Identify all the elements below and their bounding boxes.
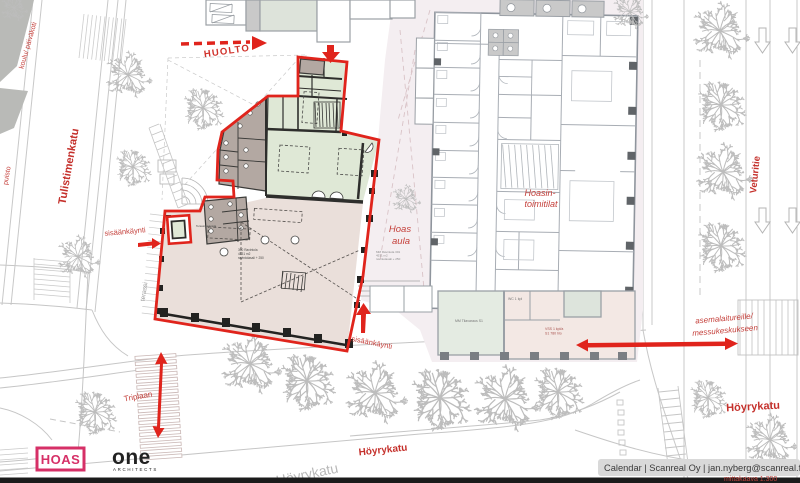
svg-text:one: one (112, 446, 151, 469)
svg-text:Hoas: Hoas (389, 224, 411, 235)
svg-text:toimitilat: toimitilat (524, 199, 558, 209)
svg-text:Terassi ravintola: Terassi ravintola (196, 224, 217, 228)
svg-text:MM Tilavaraus S1: MM Tilavaraus S1 (455, 319, 483, 323)
svg-text:S1 780 hlo: S1 780 hlo (545, 332, 562, 336)
svg-text:HOAS: HOAS (41, 452, 81, 467)
svg-text:ARCHITECTS: ARCHITECTS (113, 467, 158, 472)
svg-text:WC 1 kpl: WC 1 kpl (508, 297, 522, 301)
svg-text:ravintolasali + 250: ravintolasali + 250 (238, 256, 264, 260)
svg-text:ravintolasali + 250: ravintolasali + 250 (376, 257, 401, 261)
svg-text:mittakaava 1:300: mittakaava 1:300 (724, 476, 777, 483)
svg-text:VSS 1 kpl/a: VSS 1 kpl/a (545, 327, 563, 331)
svg-text:Calendar | Scanreal Oy | jan.n: Calendar | Scanreal Oy | jan.nyberg@scan… (604, 463, 800, 473)
svg-text:aula: aula (392, 236, 410, 247)
svg-text:Hoasin-: Hoasin- (524, 188, 555, 198)
